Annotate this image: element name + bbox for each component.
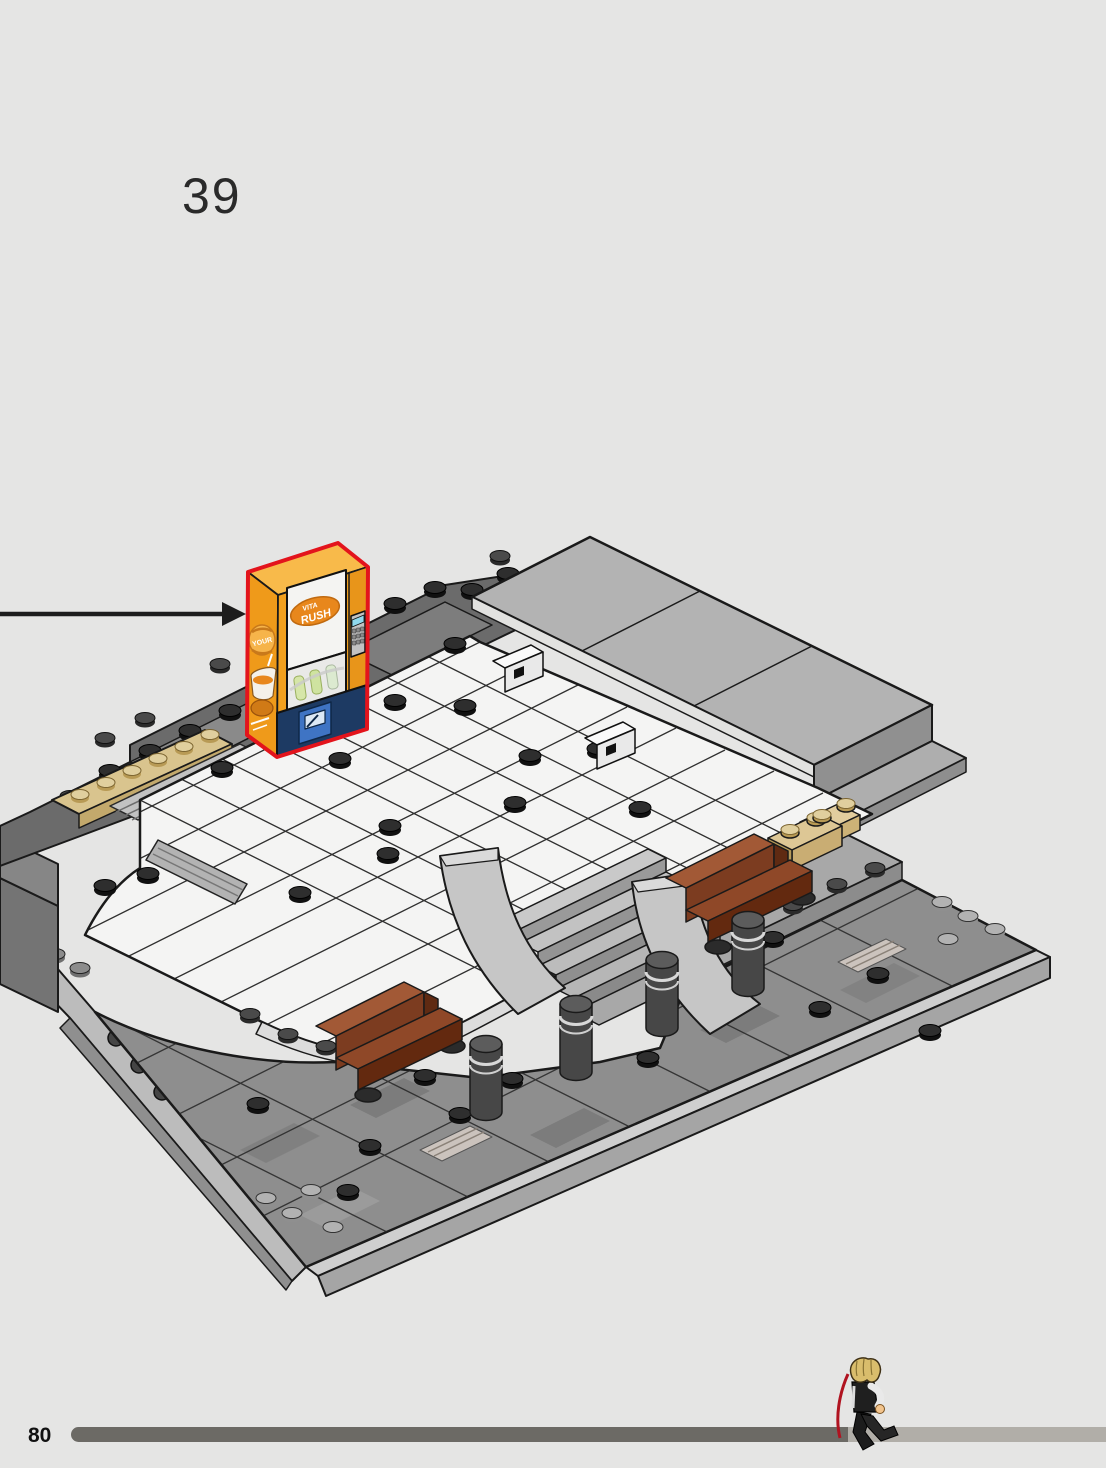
callout-arrow [0,602,246,626]
lego-scene-illustration: YOUR VITA RUSH [0,537,1106,1296]
page-canvas: 39 [0,0,1106,1468]
vending-keypad [351,611,365,657]
vending-machine-highlight: YOUR VITA RUSH [247,543,368,757]
step-number: 39 [182,168,242,224]
page-number: 80 [28,1424,51,1447]
progress-bar-filled [71,1427,845,1442]
progress-bar [71,1427,1106,1442]
